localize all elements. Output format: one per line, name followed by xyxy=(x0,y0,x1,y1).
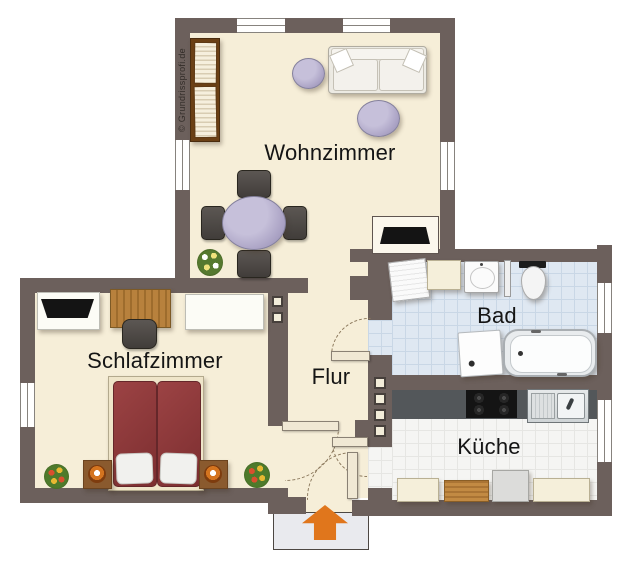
room-label-kueche: Küche xyxy=(457,434,520,460)
kitchen-sink-unit xyxy=(527,389,589,423)
sofa xyxy=(328,46,427,94)
room-label-bad: Bad xyxy=(477,303,517,329)
nightstand-left xyxy=(83,460,112,489)
nightstand-right xyxy=(199,460,228,489)
shaft-square xyxy=(374,409,386,421)
schlafzimmer-door-leaf xyxy=(282,421,339,431)
double-bed xyxy=(108,376,204,491)
kitchen-cabinet-right xyxy=(533,478,590,502)
plant-schlafzimmer-left xyxy=(44,464,69,489)
plant-wohnzimmer xyxy=(197,249,223,276)
dining-chair-top xyxy=(237,170,271,198)
kitchen-table xyxy=(444,480,489,502)
floor-plan: Wohnzimmer Schlafzimmer Flur Bad Küche ©… xyxy=(0,0,640,566)
stove xyxy=(466,390,517,418)
glass-partition xyxy=(504,260,511,297)
window-wohnzimmer-top-right xyxy=(343,18,390,33)
washing-machine xyxy=(388,258,431,302)
tv-icon xyxy=(41,299,94,318)
dining-chair-bottom xyxy=(237,250,271,278)
lamp-icon xyxy=(204,465,222,483)
tub-handle xyxy=(531,330,541,333)
window-bad-right xyxy=(597,283,612,333)
pillow xyxy=(159,452,197,484)
ottoman-small xyxy=(292,58,325,89)
tub-handle xyxy=(557,373,567,376)
plant-schlafzimmer-right xyxy=(244,462,270,488)
room-label-flur: Flur xyxy=(312,364,351,390)
shower xyxy=(457,330,503,378)
dining-chair-right xyxy=(283,206,307,240)
window-wohnzimmer-right xyxy=(440,142,455,190)
window-wohnzimmer-left xyxy=(175,140,190,190)
wall-flur-jamb xyxy=(350,276,375,300)
window-schlafzimmer-left xyxy=(20,383,35,427)
lamp-icon xyxy=(88,465,106,483)
wall-wohnzimmer-right xyxy=(440,18,455,254)
kitchen-cabinet-left xyxy=(397,478,439,502)
window-kueche-right xyxy=(597,400,612,462)
vent-square xyxy=(272,312,283,323)
bad-doorway-floor xyxy=(368,320,392,355)
ottoman-large xyxy=(357,100,400,137)
shaft-square xyxy=(374,393,386,405)
entrance-door-leaf xyxy=(347,452,358,499)
vent-square xyxy=(272,296,283,307)
window-wohnzimmer-top-left xyxy=(237,18,285,33)
dresser xyxy=(185,294,264,330)
sink-bowl xyxy=(470,267,495,289)
bathtub xyxy=(503,329,597,377)
pillow xyxy=(115,452,153,484)
watermark-text: © Grundrissprofi.de xyxy=(177,48,187,132)
kueche-door-leaf xyxy=(332,437,368,447)
room-label-wohnzimmer: Wohnzimmer xyxy=(264,140,395,166)
bad-door-leaf xyxy=(331,351,370,361)
wall-flur-bottom-left xyxy=(268,497,306,514)
faucet-icon xyxy=(480,263,483,266)
kueche-doorway-floor xyxy=(368,447,392,488)
bath-cabinet xyxy=(427,260,461,290)
dining-table xyxy=(222,196,286,250)
wall-wohnzimmer-top xyxy=(175,18,455,33)
tv-icon xyxy=(380,227,430,244)
faucet-icon xyxy=(518,351,523,356)
wall-kueche-door-south xyxy=(368,488,392,508)
drainboard xyxy=(531,393,555,419)
books-stack xyxy=(194,86,218,138)
shaft-square xyxy=(374,425,386,437)
fridge xyxy=(492,470,529,502)
bath-sink xyxy=(464,261,499,293)
room-label-schlafzimmer: Schlafzimmer xyxy=(87,348,223,374)
shaft-square xyxy=(374,377,386,389)
books-stack xyxy=(194,42,217,84)
desk-chair xyxy=(122,319,157,349)
drain-icon xyxy=(468,360,474,366)
